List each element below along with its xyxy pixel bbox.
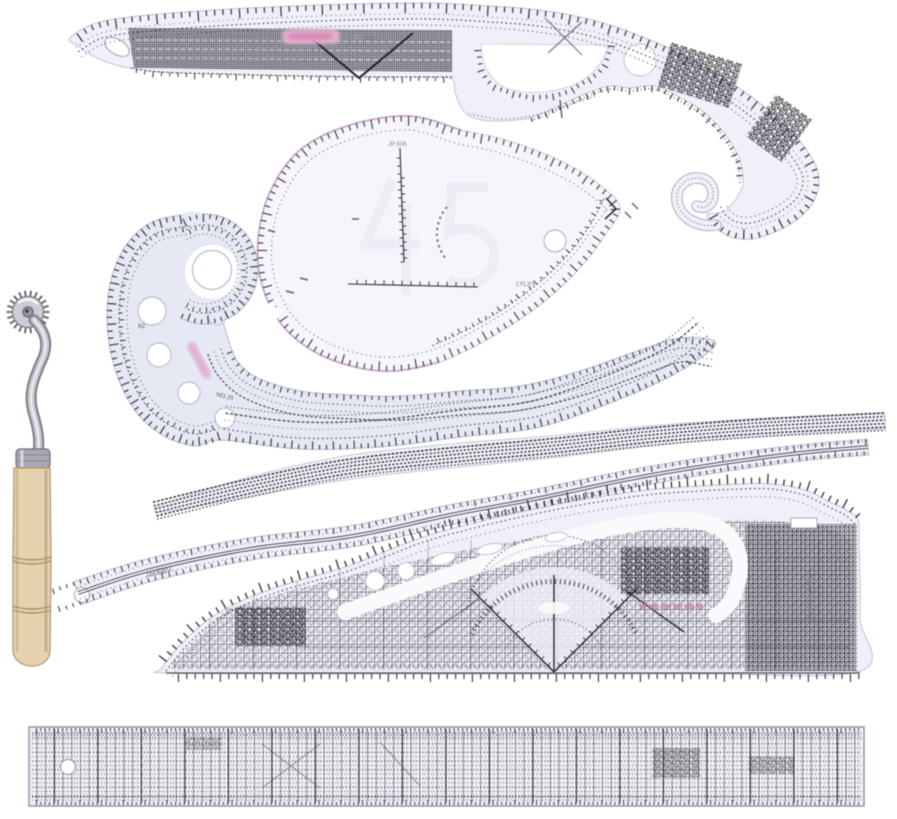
svg-text:Vary Curve Ruler: Vary Curve Ruler (807, 570, 814, 620)
svg-text:JP 606: JP 606 (388, 142, 407, 148)
svg-text:62: 62 (138, 323, 146, 330)
svg-text:LYLXY: LYLXY (516, 281, 536, 288)
svg-text:JP308S: JP308S (352, 35, 377, 42)
